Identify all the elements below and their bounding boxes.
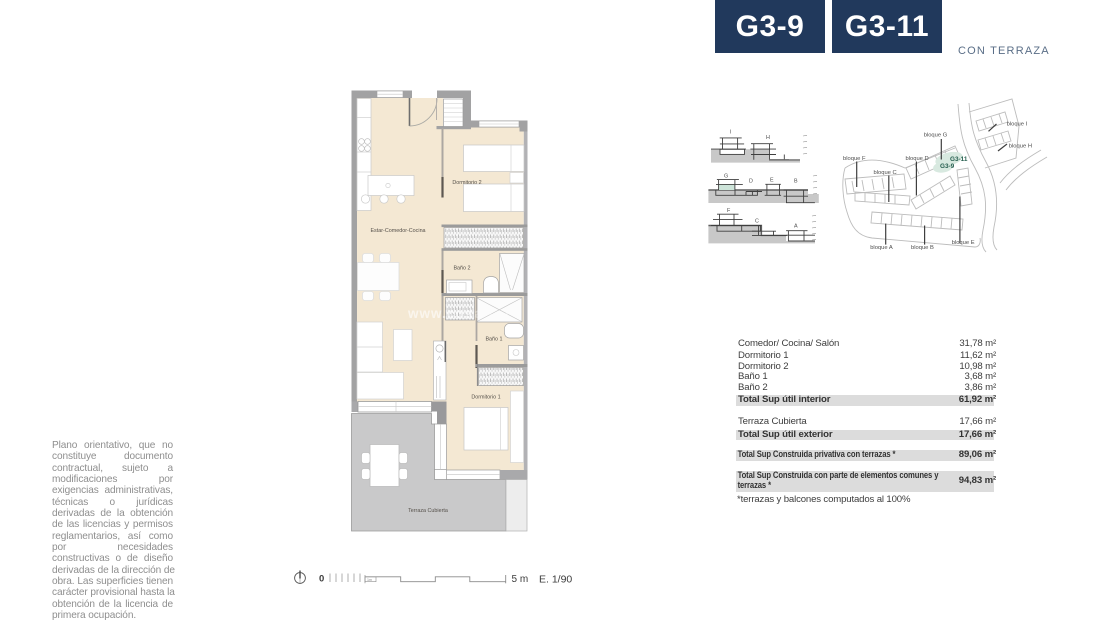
svg-text:5 m: 5 m <box>512 574 529 585</box>
svg-text:Terraza Cubierta: Terraza Cubierta <box>408 508 448 514</box>
svg-text:E: E <box>770 178 774 184</box>
svg-text:G3-11: G3-11 <box>950 156 968 163</box>
svg-text:Baño 1: Baño 1 <box>485 337 502 343</box>
svg-text:B: B <box>794 179 798 185</box>
svg-text:I: I <box>730 130 732 136</box>
svg-text:bloque I: bloque I <box>1007 122 1028 128</box>
svg-text:Baño 2: Baño 2 <box>453 266 470 272</box>
svg-text:ta······: ta······ <box>469 306 516 321</box>
svg-text:bloque D: bloque D <box>906 156 929 162</box>
svg-text:bloque B: bloque B <box>911 245 934 251</box>
svg-text:G3-9: G3-9 <box>940 163 955 170</box>
svg-text:bloque G: bloque G <box>924 133 948 139</box>
svg-text:Dormitorio 2: Dormitorio 2 <box>452 180 481 186</box>
svg-text:bloque H: bloque H <box>1009 144 1032 150</box>
svg-text:bloque F: bloque F <box>843 156 866 162</box>
svg-text:bloque C: bloque C <box>874 170 897 176</box>
svg-text:E. 1/90: E. 1/90 <box>539 574 572 586</box>
svg-text:C: C <box>755 219 759 225</box>
svg-text:A: A <box>794 224 798 230</box>
svg-text:0: 0 <box>319 574 324 585</box>
svg-text:Estar-Comedor-Cocina: Estar-Comedor-Cocina <box>370 228 425 234</box>
svg-text:www.cos: www.cos <box>407 306 473 321</box>
svg-text:F: F <box>727 208 731 214</box>
svg-text:G: G <box>724 174 728 180</box>
svg-text:H: H <box>766 135 770 141</box>
svg-text:bloque E: bloque E <box>952 240 975 246</box>
svg-text:bloque A: bloque A <box>870 245 893 251</box>
svg-text:Dormitorio 1: Dormitorio 1 <box>471 395 500 401</box>
svg-text:1m: 1m <box>367 578 372 582</box>
svg-text:D: D <box>749 179 753 185</box>
